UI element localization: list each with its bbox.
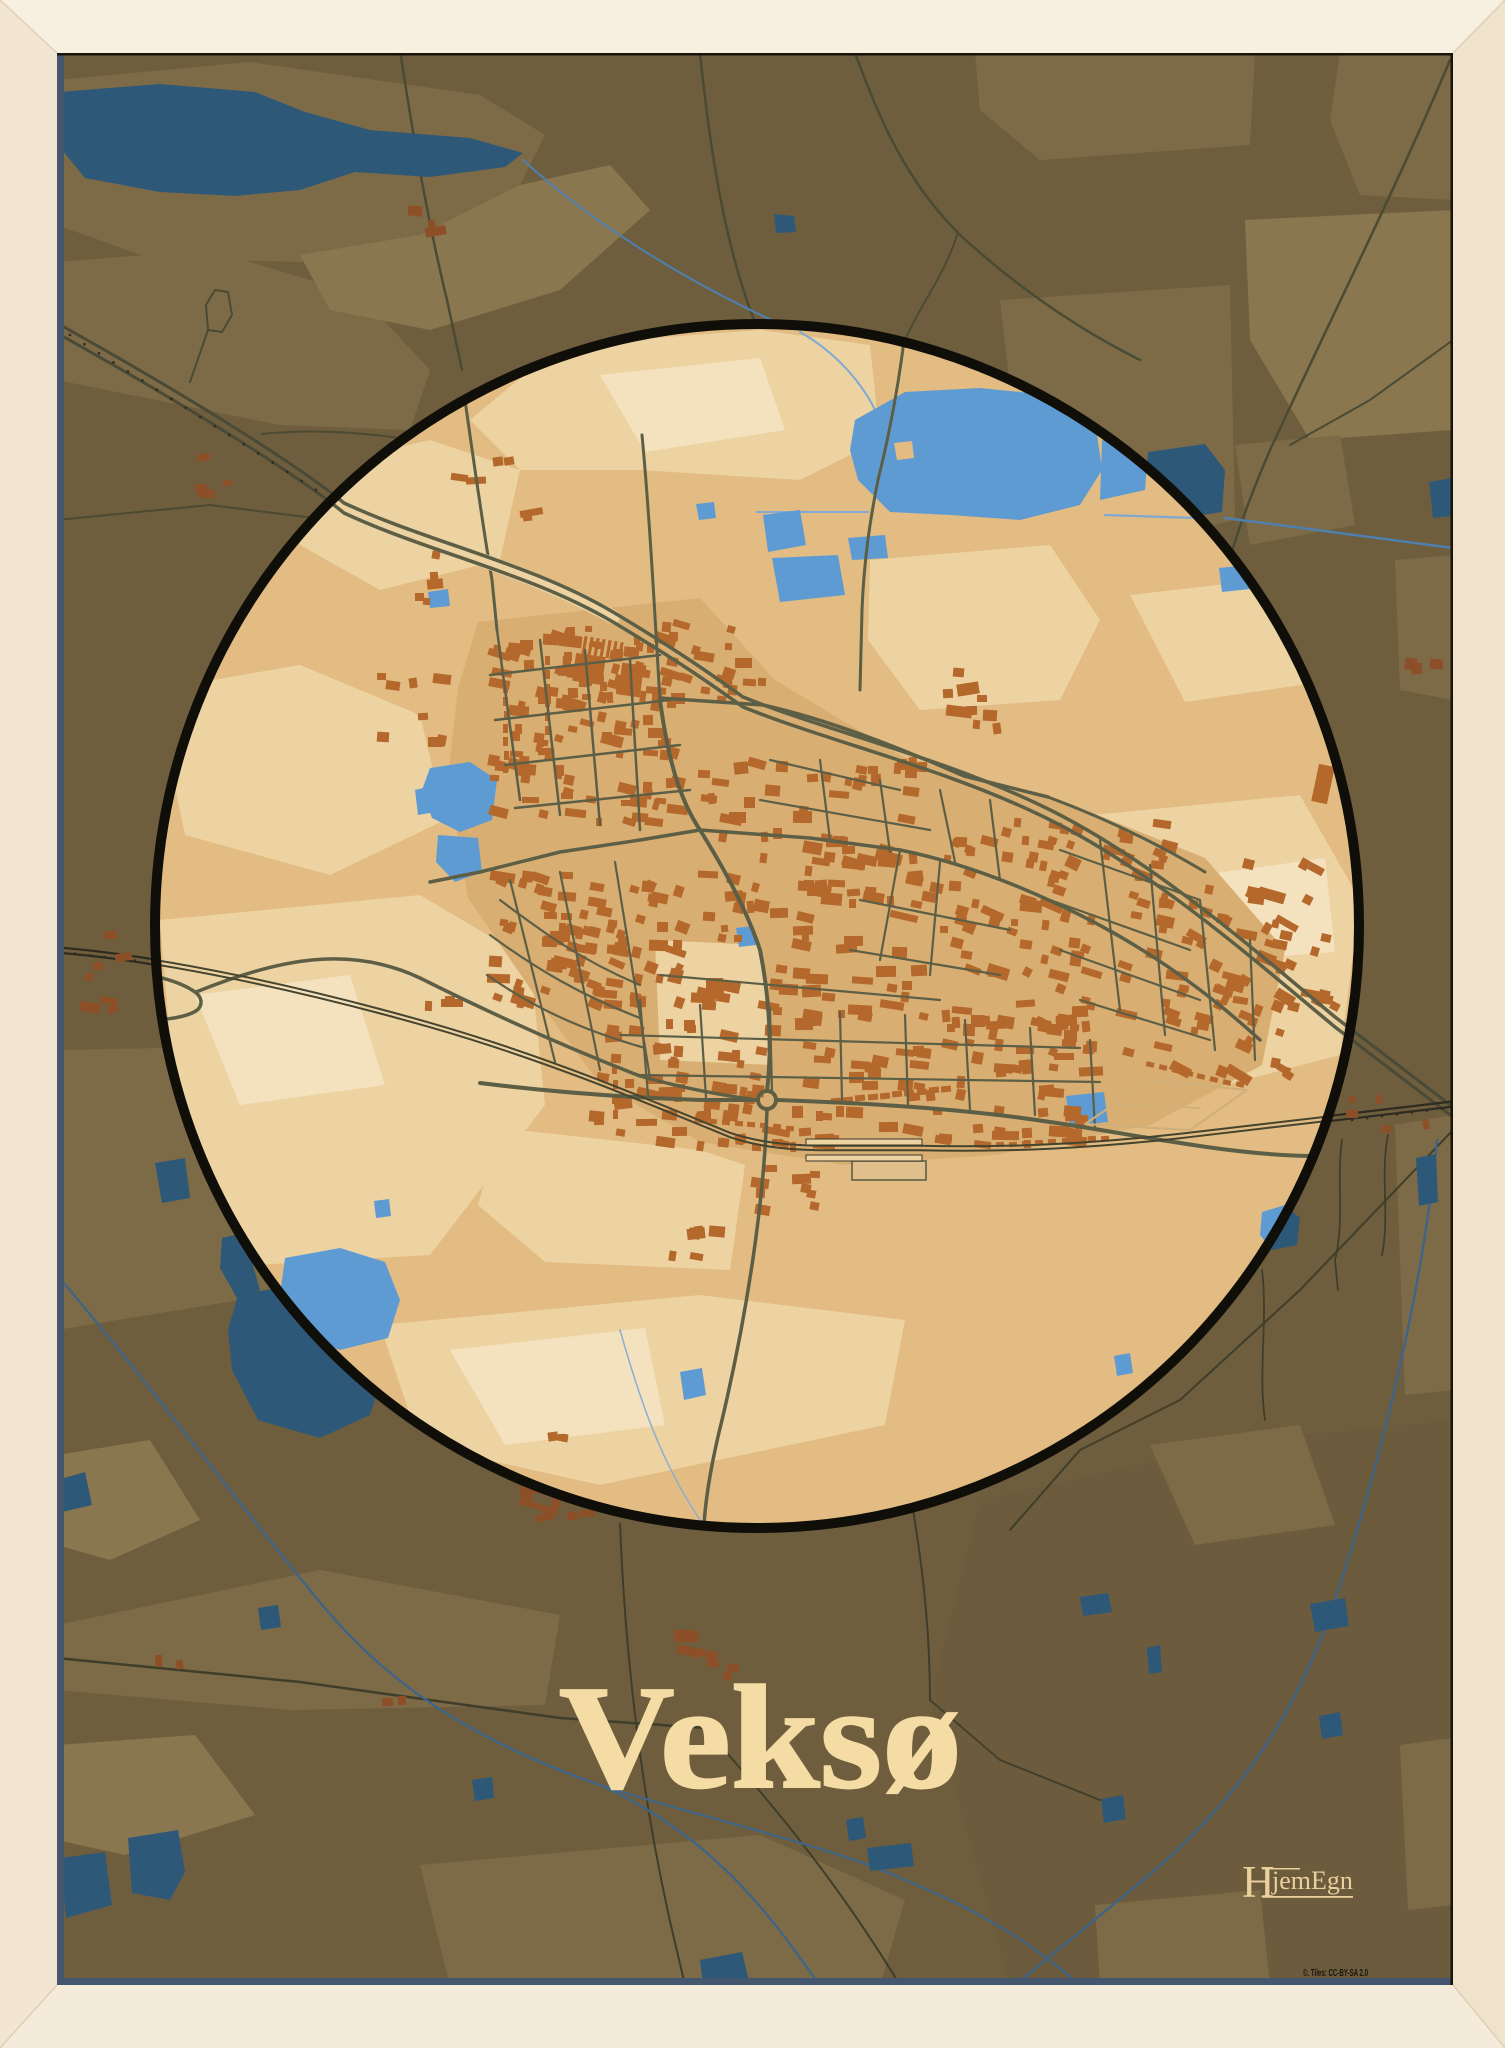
- svg-text:Veksø: Veksø: [559, 1656, 962, 1820]
- svg-text:©. Tiles: CC-BY-SA 2.0: ©. Tiles: CC-BY-SA 2.0: [1303, 1967, 1368, 1979]
- svg-text:H: H: [1242, 1857, 1275, 1907]
- svg-text:jemEgn: jemEgn: [1271, 1866, 1353, 1895]
